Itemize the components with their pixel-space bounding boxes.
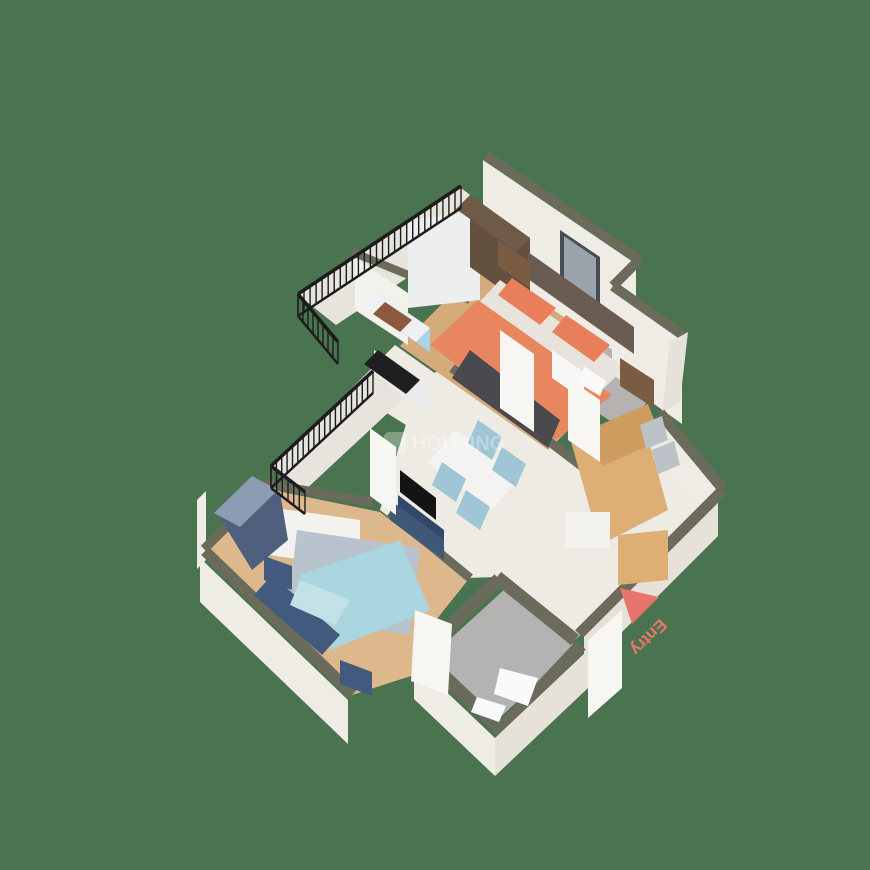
svg-text:HOUSING: HOUSING xyxy=(412,433,505,455)
